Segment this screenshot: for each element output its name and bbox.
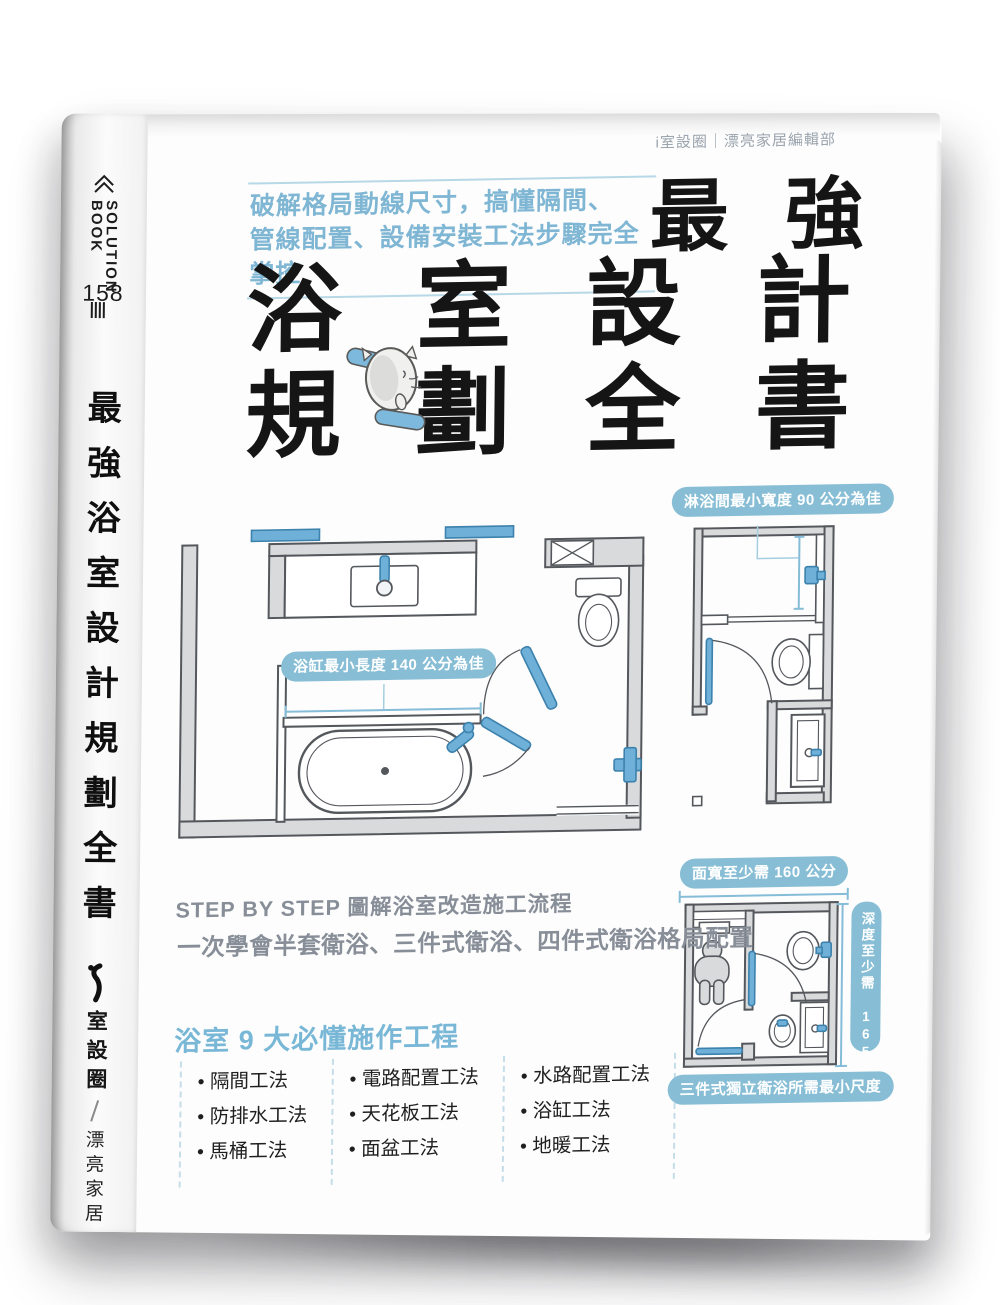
- title-char: 最: [649, 176, 729, 256]
- step-subheading: 一次學會半套衛浴、三件式衛浴、四件式衛浴格局配置: [177, 919, 753, 963]
- works-item: 隔間工法: [198, 1063, 308, 1100]
- works-column-1: 隔間工法 防排水工法 馬桶工法: [179, 1059, 332, 1188]
- works-item: 天花板工法: [349, 1095, 479, 1132]
- works-item: 地暖工法: [520, 1127, 650, 1164]
- works-column-2: 電路配置工法 天花板工法 面盆工法: [330, 1056, 503, 1185]
- spine-title: 最強浴室設計規劃全書: [72, 390, 127, 940]
- vanity-counter: [285, 552, 477, 617]
- sliding-door: [702, 613, 824, 624]
- title-char: 規: [245, 369, 341, 466]
- depth-dimension-label: 深度至少需 165 公分: [850, 901, 882, 1052]
- shower-dimension-line: [757, 525, 805, 610]
- floor-plan-shower: [689, 524, 840, 809]
- bathtub-symbol: [299, 722, 476, 813]
- works-item: 面盆工法: [349, 1130, 479, 1167]
- vanity-symbol: [791, 714, 825, 787]
- series-number: 158: [60, 279, 146, 307]
- title-char: 設: [586, 257, 682, 354]
- double-chevron-icon: [93, 173, 115, 193]
- title-char: 浴: [246, 263, 342, 360]
- bathtub-dimension-label: 浴缸最小長度 140 公分為佳: [281, 648, 496, 682]
- title-char: 計: [755, 254, 851, 351]
- author-credit: i室設圈｜漂亮家居編輯部: [656, 128, 837, 152]
- depth-dimension-line: [834, 900, 850, 1070]
- works-item: 浴缸工法: [520, 1092, 650, 1129]
- works-item: 水路配置工法: [521, 1057, 651, 1094]
- basin-symbol: [769, 1015, 795, 1047]
- book-spine: SOLUTION BOOK 158 最強浴室設計規劃全書: [50, 113, 148, 1232]
- column: [693, 796, 702, 805]
- works-item: 電路配置工法: [349, 1060, 479, 1097]
- publisher-name: 室設圈: [80, 1010, 111, 1097]
- title-char: 書: [754, 360, 850, 457]
- door-sill: [557, 805, 639, 816]
- title-char: 強: [784, 174, 864, 254]
- window-symbol: [251, 529, 319, 541]
- vanity-symbol: [800, 1002, 829, 1052]
- series-logo: SOLUTION BOOK: [59, 127, 147, 364]
- publisher-mark-icon: [87, 962, 105, 1009]
- bathtub-dimension-line: [286, 682, 481, 717]
- width-dimension-line: [676, 886, 852, 905]
- front-cover: i室設圈｜漂亮家居編輯部 破解格局動線尺寸，搞懂隔間、 管線配置、設備安裝工法步…: [136, 114, 942, 1240]
- title-char: 全: [585, 363, 681, 460]
- works-item: 馬桶工法: [197, 1133, 307, 1170]
- shower-dimension-label: 淋浴間最小寬度 90 公分為佳: [672, 483, 894, 517]
- width-dimension-label: 面寬至少需 160 公分: [680, 856, 849, 889]
- vent-shaft: [551, 540, 593, 565]
- toilet-symbol: [772, 634, 824, 689]
- publisher-subname: 漂亮家居: [80, 1130, 107, 1228]
- book-mockup-scene: SOLUTION BOOK 158 最強浴室設計規劃全書: [0, 0, 1000, 1305]
- main-title-row1: 浴 室 設 計: [246, 254, 851, 360]
- works-item: 防排水工法: [197, 1098, 307, 1135]
- works-column-3: 水路配置工法 浴缸工法 地暖工法: [502, 1053, 677, 1182]
- works-heading: 浴室 9 大必懂施作工程: [174, 1015, 460, 1059]
- book-cover: SOLUTION BOOK 158 最強浴室設計規劃全書: [50, 113, 942, 1240]
- publisher-divider: [90, 1100, 98, 1121]
- floor-plan-main: [176, 521, 654, 839]
- three-piece-caption: 三件式獨立衛浴所需最小尺度: [668, 1071, 894, 1105]
- door-symbol: [706, 637, 773, 704]
- works-list: 隔間工法 防排水工法 馬桶工法 電路配置工法 天花板工法 面盆工法 水路配置工法…: [179, 1053, 677, 1188]
- toilet-symbol: [575, 578, 621, 647]
- toilet-symbol: [787, 931, 831, 970]
- cat-illustration: [343, 315, 439, 437]
- step-heading: STEP BY STEP 圖解浴室改造施工流程: [175, 887, 572, 925]
- main-title-row2: 規 劃 全 書: [245, 360, 850, 466]
- window-symbol: [445, 526, 513, 538]
- title-emphasis: 最 強: [649, 174, 864, 257]
